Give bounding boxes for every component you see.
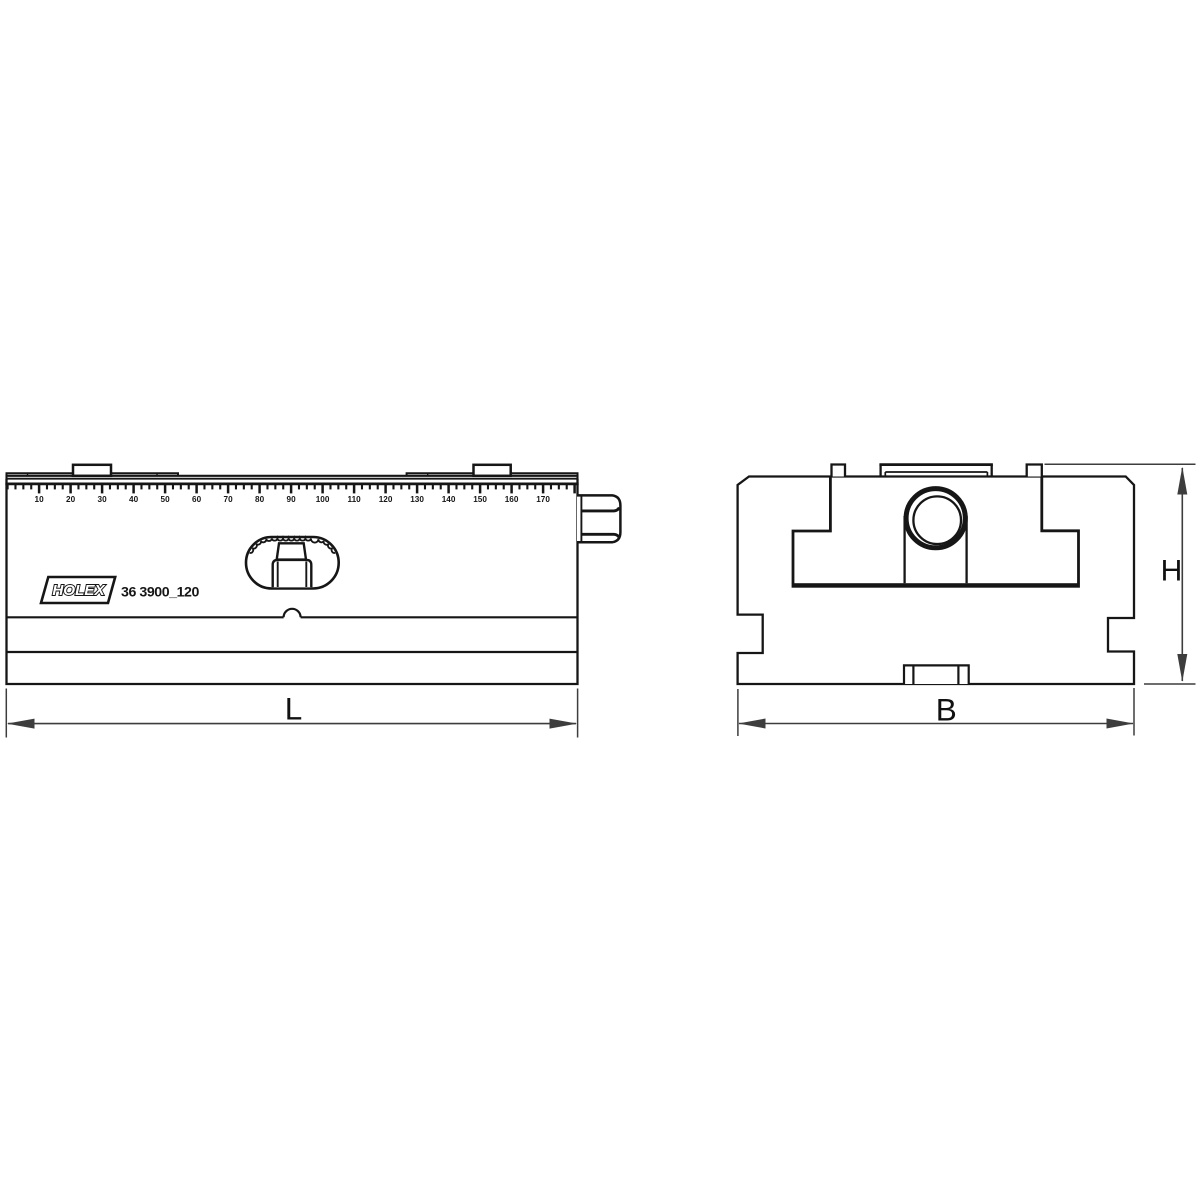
svg-text:80: 80: [255, 495, 265, 504]
svg-text:100: 100: [316, 495, 330, 504]
svg-text:130: 130: [410, 495, 424, 504]
svg-text:10: 10: [35, 495, 45, 504]
svg-text:140: 140: [442, 495, 456, 504]
svg-text:20: 20: [66, 495, 76, 504]
svg-text:70: 70: [224, 495, 234, 504]
svg-text:120: 120: [379, 495, 393, 504]
svg-text:30: 30: [98, 495, 108, 504]
svg-text:110: 110: [347, 495, 361, 504]
svg-text:150: 150: [473, 495, 487, 504]
svg-text:B: B: [936, 692, 957, 728]
svg-text:160: 160: [505, 495, 519, 504]
svg-text:50: 50: [161, 495, 171, 504]
svg-text:L: L: [285, 691, 303, 727]
svg-text:90: 90: [287, 495, 297, 504]
svg-text:H: H: [1161, 555, 1183, 588]
svg-text:170: 170: [536, 495, 550, 504]
svg-text:40: 40: [129, 495, 139, 504]
svg-text:36 3900_120: 36 3900_120: [121, 585, 199, 601]
svg-text:60: 60: [192, 495, 202, 504]
svg-text:HOLEX: HOLEX: [52, 582, 105, 599]
